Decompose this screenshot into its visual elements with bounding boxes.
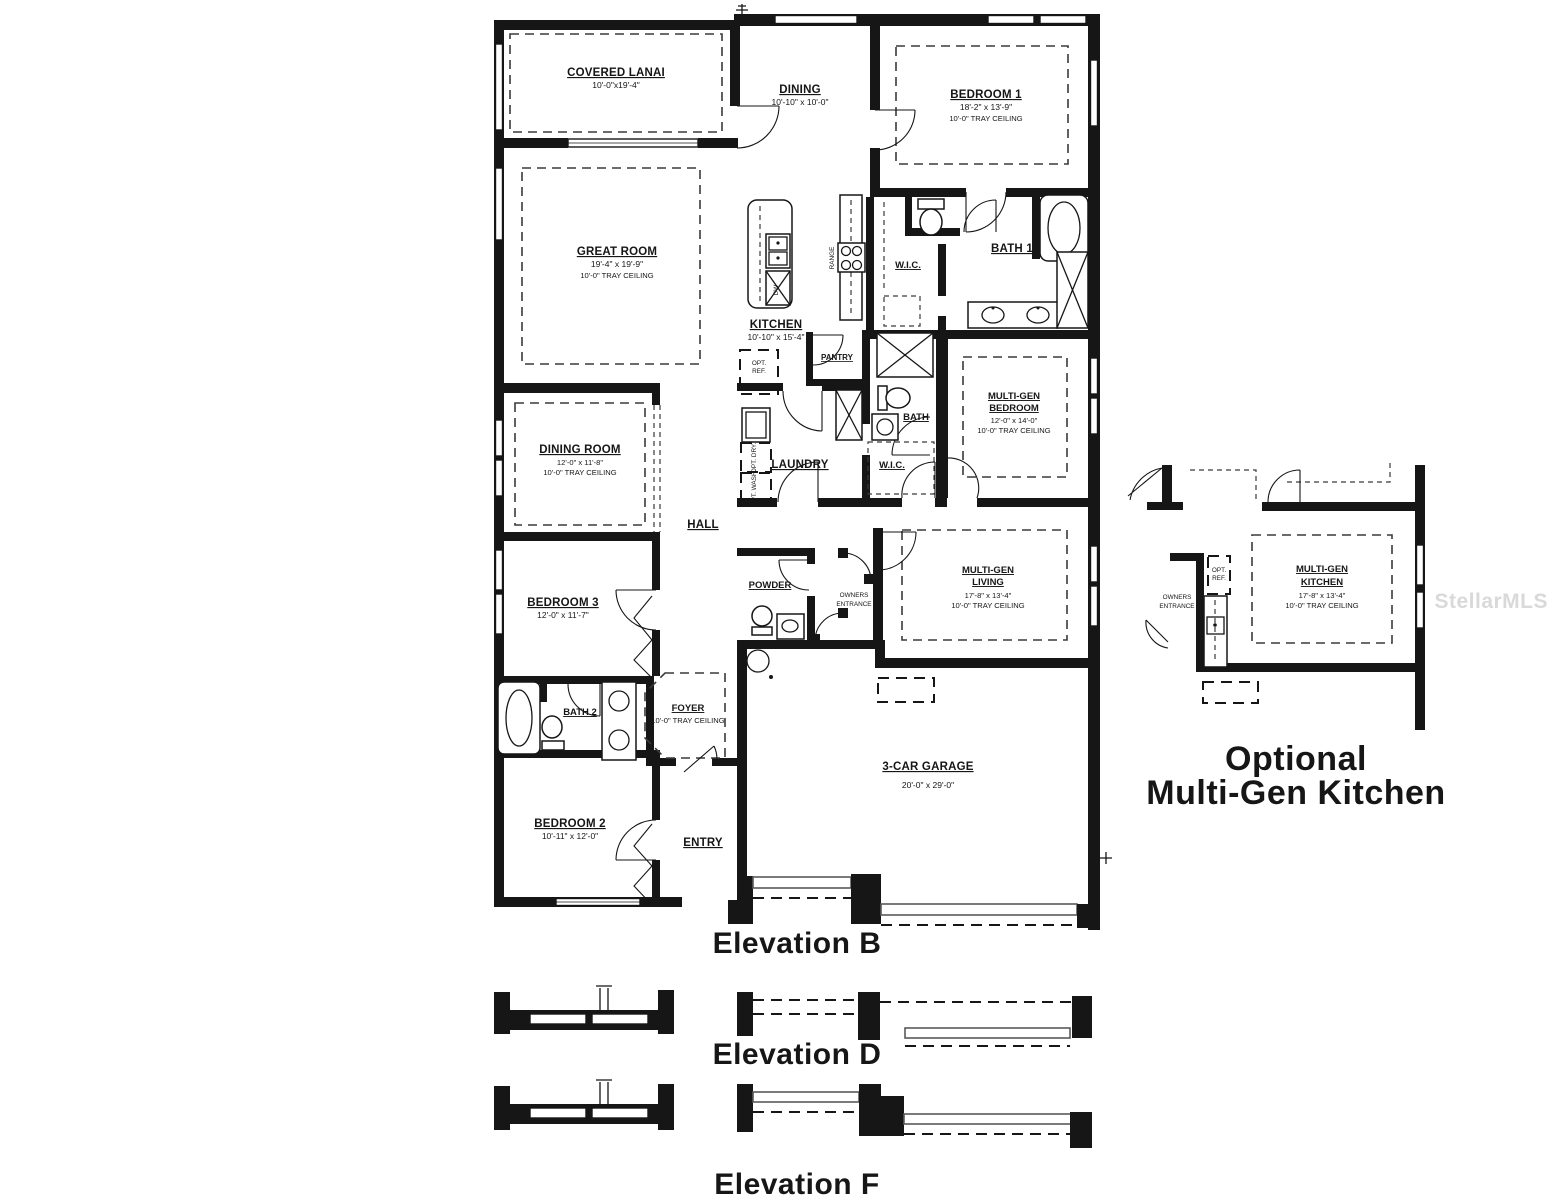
room-ceiling-multigen-bedroom: 10'-0" TRAY CEILING bbox=[977, 426, 1050, 435]
room-ceiling-optional-kitchen: 10'-0" TRAY CEILING bbox=[1285, 601, 1358, 610]
label-optional-owners-entrance-2: ENTRANCE bbox=[1159, 603, 1194, 610]
laundry-sink bbox=[742, 408, 770, 442]
label-opt-ref-1: OPT. bbox=[752, 360, 766, 367]
title-optional-kitchen-line2: Multi-Gen Kitchen bbox=[1146, 774, 1445, 812]
survey-marks bbox=[736, 4, 1112, 864]
room-label-pantry: PANTRY bbox=[821, 353, 854, 362]
room-dims-garage: 20'-0" x 29'-0" bbox=[902, 780, 954, 790]
bedroom3-closet-doors bbox=[634, 596, 652, 678]
room-dims-bedroom-2: 10'-11" x 12'-0" bbox=[542, 831, 598, 841]
center-bath-toilet bbox=[878, 386, 910, 410]
title-elevation-b: Elevation B bbox=[713, 927, 882, 960]
elevation-f-drawing bbox=[494, 1080, 1092, 1148]
label-opt-ref-2: REF. bbox=[752, 368, 766, 375]
title-elevation-d: Elevation D bbox=[713, 1038, 882, 1071]
center-bath-shower bbox=[877, 333, 933, 377]
label-opt-wash: OPT. WASH. bbox=[751, 469, 758, 506]
room-label-great-room: GREAT ROOM bbox=[577, 246, 657, 258]
room-label-entry: ENTRY bbox=[683, 837, 723, 849]
room-dims-multigen-living: 17'-8" x 13'-4" bbox=[965, 591, 1012, 600]
label-optional-opt-ref-1: OPT. bbox=[1212, 567, 1226, 574]
room-label-multigen-living-2: LIVING bbox=[972, 577, 1004, 588]
title-optional-kitchen-line1: Optional bbox=[1225, 740, 1367, 778]
label-opt-dry: OPT. DRY. bbox=[751, 443, 758, 474]
label-dishwasher: DW bbox=[773, 284, 780, 296]
room-dims-great-room: 19'-4" x 19'-9" bbox=[591, 259, 643, 269]
label-range: RANGE bbox=[829, 247, 836, 270]
powder-toilet bbox=[752, 606, 772, 635]
room-dims-dining: 10'-10" x 10'-0" bbox=[771, 97, 828, 107]
room-label-laundry: LAUNDRY bbox=[771, 459, 828, 471]
room-label-garage: 3-CAR GARAGE bbox=[882, 761, 973, 773]
room-ceiling-foyer: 10'-0" TRAY CEILING bbox=[651, 716, 724, 725]
garage-door-openings bbox=[728, 874, 1100, 928]
room-dims-multigen-bedroom: 12'-0" x 14'-0" bbox=[991, 416, 1038, 425]
room-dims-bedroom-3: 12'-0" x 11'-7" bbox=[537, 610, 589, 620]
room-label-dining-room: DINING ROOM bbox=[539, 444, 620, 456]
optional-kitchen-counter bbox=[1204, 596, 1227, 667]
room-ceiling-bedroom-1: 10'-0" TRAY CEILING bbox=[949, 114, 1022, 123]
range-counter bbox=[838, 195, 865, 320]
room-label-covered-lanai: COVERED LANAI bbox=[567, 67, 665, 79]
room-label-bath-center: BATH bbox=[903, 412, 929, 423]
bath2-vanity bbox=[602, 682, 636, 760]
bath1-toilet bbox=[918, 199, 944, 235]
room-label-bedroom-3: BEDROOM 3 bbox=[527, 597, 598, 609]
room-label-kitchen: KITCHEN bbox=[750, 319, 803, 331]
floorplan-page: COVERED LANAI 10'-0"x19'-4" DINING 10'-1… bbox=[0, 0, 1552, 1200]
water-heater bbox=[747, 650, 773, 679]
label-owners-entrance-2: ENTRANCE bbox=[836, 601, 871, 608]
powder-sink bbox=[777, 614, 804, 639]
room-label-bedroom-1: BEDROOM 1 bbox=[950, 89, 1022, 101]
room-ceiling-multigen-living: 10'-0" TRAY CEILING bbox=[951, 601, 1024, 610]
room-label-optional-kitchen-2: KITCHEN bbox=[1301, 577, 1343, 588]
bedroom2-closet-doors bbox=[634, 824, 652, 905]
room-ceiling-great-room: 10'-0" TRAY CEILING bbox=[580, 271, 653, 280]
room-label-wic-bedroom1: W.I.C. bbox=[895, 260, 921, 271]
room-label-bath-2: BATH 2 bbox=[563, 707, 597, 718]
room-label-powder: POWDER bbox=[749, 580, 792, 591]
label-owners-entrance-1: OWNERS bbox=[840, 592, 869, 599]
room-label-dining: DINING bbox=[779, 84, 820, 96]
room-dims-covered-lanai: 10'-0"x19'-4" bbox=[592, 80, 640, 90]
room-dims-optional-kitchen: 17'-8" x 13'-4" bbox=[1299, 591, 1346, 600]
room-label-bedroom-2: BEDROOM 2 bbox=[534, 818, 605, 830]
bath1-tub bbox=[1040, 195, 1088, 261]
bath1-shower bbox=[1057, 252, 1088, 328]
title-elevation-f: Elevation F bbox=[714, 1168, 880, 1200]
bath2-tub bbox=[498, 682, 540, 754]
elevation-d-drawing bbox=[494, 986, 1092, 1046]
room-label-foyer: FOYER bbox=[672, 703, 705, 714]
room-label-hall: HALL bbox=[687, 519, 718, 531]
room-dims-kitchen: 10'-10" x 15'-4" bbox=[747, 332, 804, 342]
room-label-multigen-bedroom-1: MULTI-GEN bbox=[988, 391, 1040, 402]
room-label-multigen-bedroom-2: BEDROOM bbox=[989, 403, 1039, 414]
room-dims-dining-room: 12'-0" x 11'-8" bbox=[557, 458, 603, 467]
floorplan-drawing: COVERED LANAI 10'-0"x19'-4" DINING 10'-1… bbox=[0, 0, 1552, 1200]
room-label-optional-kitchen-1: MULTI-GEN bbox=[1296, 564, 1348, 575]
stellar-mls-watermark: StellarMLS bbox=[1434, 590, 1548, 613]
room-label-multigen-living-1: MULTI-GEN bbox=[962, 565, 1014, 576]
room-label-wic-center: W.I.C. bbox=[879, 460, 905, 471]
label-optional-opt-ref-2: REF. bbox=[1212, 575, 1226, 582]
linen-closet bbox=[836, 390, 862, 440]
bath2-toilet bbox=[542, 716, 564, 750]
center-bath-sink bbox=[872, 414, 898, 440]
room-dims-bedroom-1: 18'-2" x 13'-9" bbox=[960, 102, 1012, 112]
room-label-bath-1: BATH 1 bbox=[991, 243, 1033, 255]
label-optional-owners-entrance-1: OWNERS bbox=[1163, 594, 1192, 601]
room-ceiling-dining-room: 10'-0" TRAY CEILING bbox=[543, 468, 616, 477]
kitchen-island bbox=[748, 200, 792, 308]
bath1-vanity bbox=[968, 302, 1058, 328]
